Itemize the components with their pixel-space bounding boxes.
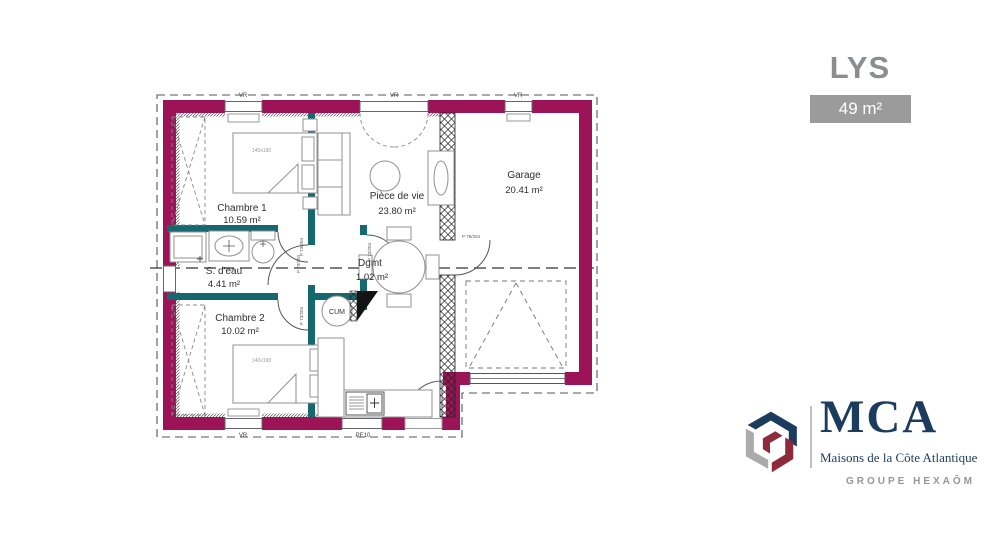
room-name-hall: Dgmt bbox=[358, 258, 382, 269]
door-label-bathroom: P 73/204 bbox=[296, 255, 301, 273]
logo-name: MCA bbox=[820, 390, 938, 444]
plan-title: LYS bbox=[790, 50, 930, 86]
entry-label: PE10 bbox=[356, 433, 371, 439]
door-garage bbox=[455, 240, 490, 275]
window-garage bbox=[505, 102, 532, 112]
bed2-size-label: 140x190 bbox=[252, 358, 271, 364]
bed1-size-label: 140x190 bbox=[252, 148, 271, 154]
room-name-living: Pièce de vie bbox=[370, 191, 425, 202]
room-area-living: 23.80 m² bbox=[378, 206, 416, 217]
vanity-sink bbox=[209, 231, 249, 261]
garage-door bbox=[466, 281, 566, 384]
room-name-garage: Garage bbox=[507, 170, 541, 181]
french-door-swings bbox=[360, 113, 428, 147]
shutter-label-chambre2: VR bbox=[239, 433, 248, 439]
room-area-chambre2: 10.02 m² bbox=[221, 326, 259, 337]
window-kitchen bbox=[342, 419, 382, 429]
room-area-garage: 20.41 m² bbox=[505, 185, 543, 196]
window-chambre2 bbox=[225, 419, 262, 429]
tech-triangle bbox=[357, 291, 378, 321]
room-name-chambre1: Chambre 1 bbox=[217, 203, 267, 214]
brand-logo: MCA Maisons de la Côte Atlantique GROUPE… bbox=[736, 398, 976, 508]
water-heater-label: CUM bbox=[329, 309, 345, 316]
room-area-chambre1: 10.59 m² bbox=[223, 215, 261, 226]
entry-door-threshold bbox=[405, 419, 442, 429]
room-area-hall: 1.02 m² bbox=[356, 272, 388, 283]
page: LYS 49 m² bbox=[0, 0, 1000, 554]
side-table bbox=[370, 161, 400, 191]
shower bbox=[170, 232, 206, 262]
toilet bbox=[251, 231, 275, 263]
duct-hatch bbox=[350, 291, 357, 321]
logo-subtitle: Maisons de la Côte Atlantique bbox=[820, 450, 977, 466]
shutter-label-garage: VR bbox=[514, 93, 523, 99]
logo-divider bbox=[810, 406, 812, 468]
sideboard bbox=[428, 151, 454, 205]
window-bathroom bbox=[164, 266, 176, 292]
french-door-living bbox=[360, 102, 428, 112]
shutter-label-chambre1: VR bbox=[239, 93, 248, 99]
door-label-chambre2: P 73/204 bbox=[299, 307, 304, 325]
room-name-bathroom: S. d'eau bbox=[206, 266, 242, 277]
door-label-garage: P 75/204 bbox=[462, 234, 480, 239]
shutter-label-living: VR bbox=[390, 93, 399, 99]
mca-cube-icon bbox=[736, 404, 804, 480]
logo-group: GROUPE HEXAÔM bbox=[846, 476, 975, 487]
bed-chambre1 bbox=[233, 119, 317, 209]
bed-chambre2 bbox=[233, 345, 325, 403]
window-chambre1 bbox=[225, 102, 262, 112]
kitchen-counter bbox=[318, 338, 432, 417]
door-label-chambre1: P 73/204 bbox=[299, 238, 304, 256]
room-name-chambre2: Chambre 2 bbox=[215, 313, 265, 324]
sofa bbox=[318, 133, 350, 215]
room-area-bathroom: 4.41 m² bbox=[208, 279, 240, 290]
area-badge: 49 m² bbox=[810, 95, 911, 123]
